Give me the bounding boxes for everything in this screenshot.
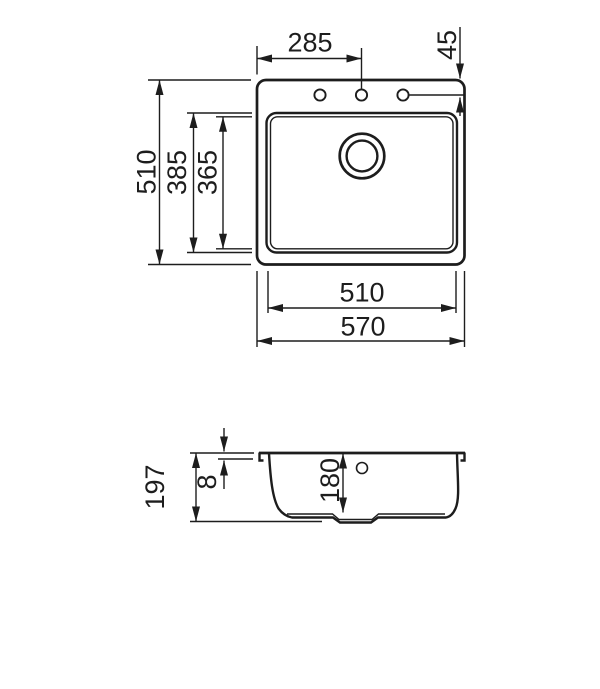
- tap-hole-right: [397, 89, 408, 100]
- tap-hole-center: [356, 89, 367, 100]
- dim-total-height: 197: [140, 453, 322, 522]
- sink-technical-drawing: 285 45 510 385 365 510 570: [0, 0, 600, 689]
- dim-bowl-inner-depth: 365: [193, 117, 253, 249]
- dim-label-197: 197: [140, 464, 170, 509]
- overflow-hole: [357, 463, 368, 474]
- drawing-svg: 285 45 510 385 365 510 570: [0, 0, 600, 689]
- tap-hole-left: [314, 89, 325, 100]
- dim-label-180: 180: [315, 458, 345, 503]
- dim-label-510-left: 510: [132, 149, 162, 194]
- dim-tap-offset-y: 45: [410, 27, 465, 116]
- dim-bowl-width: 510: [268, 271, 456, 313]
- dim-label-285: 285: [287, 28, 332, 58]
- section-bowl-outer-profile: [269, 454, 458, 523]
- dim-rim-thickness: 8: [192, 428, 253, 490]
- dim-label-385: 385: [162, 150, 192, 195]
- dim-label-510-bottom: 510: [339, 278, 384, 308]
- dim-label-8: 8: [192, 474, 222, 489]
- dim-bowl-depth: 180: [315, 454, 345, 513]
- dim-label-570: 570: [340, 312, 385, 342]
- bowl-inner-edge: [271, 117, 454, 249]
- section-view: [259, 453, 465, 523]
- drain-inner-ring: [347, 141, 378, 172]
- dim-label-365: 365: [193, 150, 223, 195]
- top-view: [257, 80, 465, 265]
- dim-label-45: 45: [432, 30, 462, 60]
